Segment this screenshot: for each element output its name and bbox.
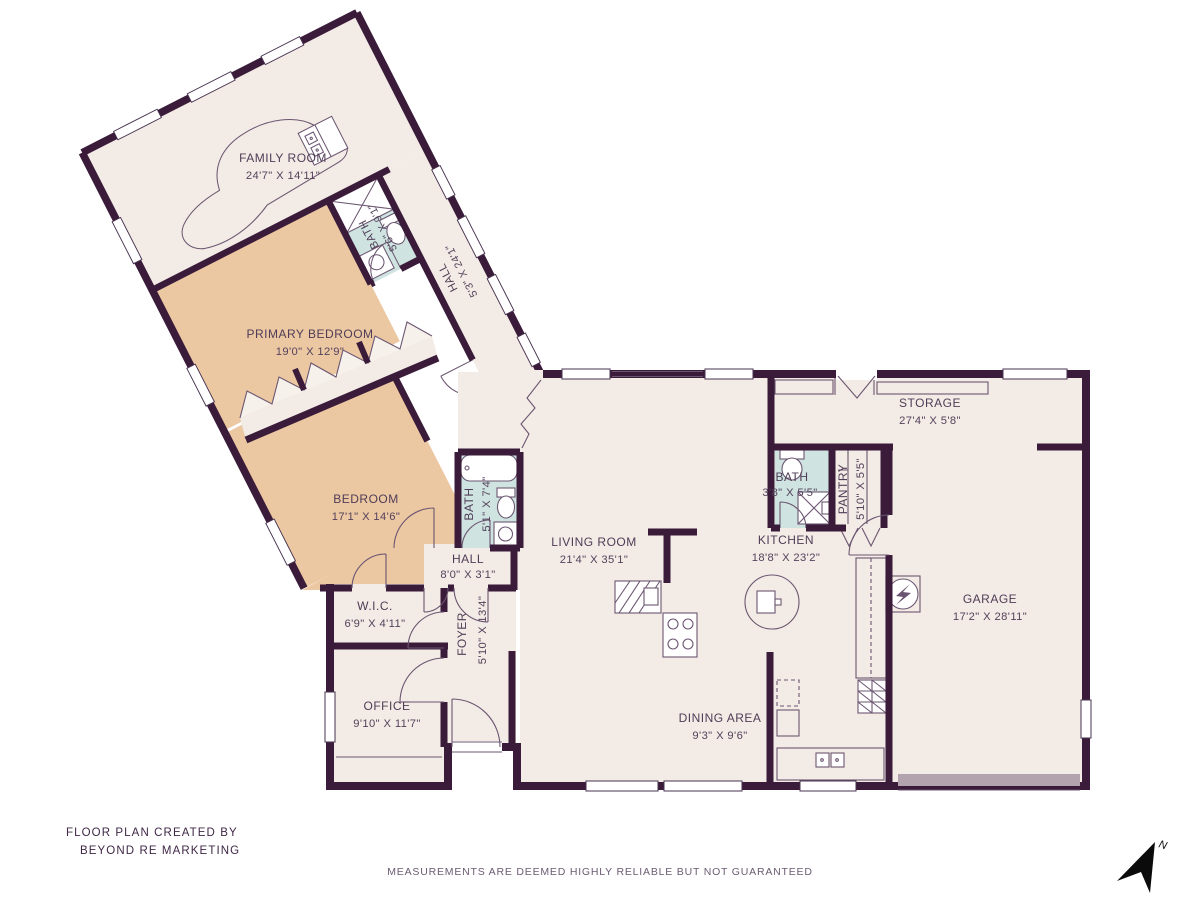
disclaimer-text: MEASUREMENTS ARE DEEMED HIGHLY RELIABLE … <box>387 866 812 878</box>
north-label: N <box>1157 838 1168 852</box>
wic-label: W.I.C. <box>357 599 393 613</box>
garage-label: GARAGE <box>963 592 1017 606</box>
pantry-label: PANTRY <box>836 464 850 515</box>
bath-vanity-icon <box>494 522 517 546</box>
bath3-label: BATH <box>775 470 808 484</box>
primary-bedroom-dims: 19'0" X 12'9" <box>276 346 344 358</box>
stove-icon <box>663 613 697 657</box>
storage-label: STORAGE <box>899 396 961 410</box>
credit-line-1: FLOOR PLAN CREATED BY <box>66 827 238 839</box>
bath2-dims: 5'1" X 7'4" <box>481 476 493 531</box>
hall2-dims: 8'0" X 3'1" <box>440 569 495 581</box>
kitchen-label: KITCHEN <box>758 533 814 547</box>
foyer-dims: 5'10" X 13'4" <box>477 596 489 664</box>
office-label: OFFICE <box>364 699 411 713</box>
living-room-dims: 21'4" X 35'1" <box>560 554 628 566</box>
family-room-dims: 24'7" X 14'11" <box>246 170 320 182</box>
pantry-dims: 5'10" X 5'5" <box>855 458 867 520</box>
fireplace <box>615 581 661 613</box>
toilet-icon <box>497 488 515 518</box>
stacked-appliance-icon <box>858 680 886 713</box>
main-floor <box>520 370 1088 786</box>
north-arrow-icon: N <box>1117 838 1168 893</box>
hall2-label: HALL <box>452 552 484 566</box>
storage-dims: 27'4" X 5'8" <box>899 415 961 427</box>
primary-bedroom-label: PRIMARY BEDROOM <box>246 327 373 341</box>
family-room-label: FAMILY ROOM <box>239 151 327 165</box>
office-dims: 9'10" X 11'7" <box>353 718 421 730</box>
bedroom-dims: 17'1" X 14'6" <box>332 511 400 523</box>
foyer-label: FOYER <box>455 612 469 656</box>
bedroom-label: BEDROOM <box>333 492 399 506</box>
wic-dims: 6'9" X 4'11" <box>345 618 406 630</box>
dining-area-dims: 9'3" X 9'6" <box>692 730 747 742</box>
garage-dims: 17'2" X 28'11" <box>953 611 1027 623</box>
bath3-dims: 3'8" X 5'5" <box>762 487 817 499</box>
dining-area-label: DINING AREA <box>679 711 762 725</box>
kitchen-dims: 18'8" X 23'2" <box>752 552 820 564</box>
living-room-label: LIVING ROOM <box>551 535 637 549</box>
bath2-label: BATH <box>462 487 476 520</box>
floor-plan-page: BATH 5'6" X 9'1" HALL 5'3" X 24'1" <box>0 0 1200 900</box>
credit-line-2: BEYOND RE MARKETING <box>80 845 240 857</box>
floor-plan-svg: BATH 5'6" X 9'1" HALL 5'3" X 24'1" <box>0 0 1200 900</box>
